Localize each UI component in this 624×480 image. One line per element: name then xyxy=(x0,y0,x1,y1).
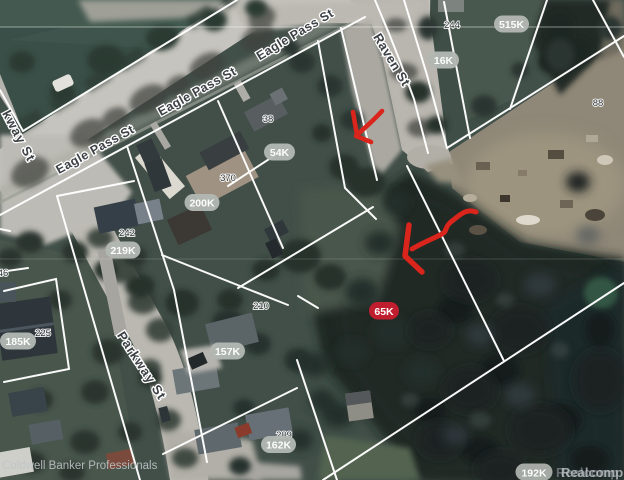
svg-text:515K: 515K xyxy=(499,19,525,31)
svg-text:225: 225 xyxy=(35,328,51,339)
svg-text:Coldwell Banker Professionals: Coldwell Banker Professionals xyxy=(2,460,158,472)
svg-text:192K: 192K xyxy=(521,468,547,480)
svg-text:242: 242 xyxy=(119,228,135,239)
svg-text:54K: 54K xyxy=(270,147,290,159)
svg-text:244: 244 xyxy=(444,20,460,31)
svg-text:88: 88 xyxy=(593,98,604,109)
svg-text:65K: 65K xyxy=(374,306,394,318)
svg-text:16K: 16K xyxy=(434,55,454,67)
svg-text:157K: 157K xyxy=(215,346,241,358)
svg-text:46: 46 xyxy=(0,268,8,279)
svg-text:Realcomp: Realcomp xyxy=(561,465,623,480)
svg-text:219K: 219K xyxy=(110,245,136,257)
svg-text:38: 38 xyxy=(263,114,274,125)
svg-text:185K: 185K xyxy=(5,336,31,348)
svg-text:162K: 162K xyxy=(266,440,292,452)
svg-text:370: 370 xyxy=(220,173,236,184)
svg-text:210: 210 xyxy=(253,301,269,312)
svg-text:200K: 200K xyxy=(189,198,215,210)
